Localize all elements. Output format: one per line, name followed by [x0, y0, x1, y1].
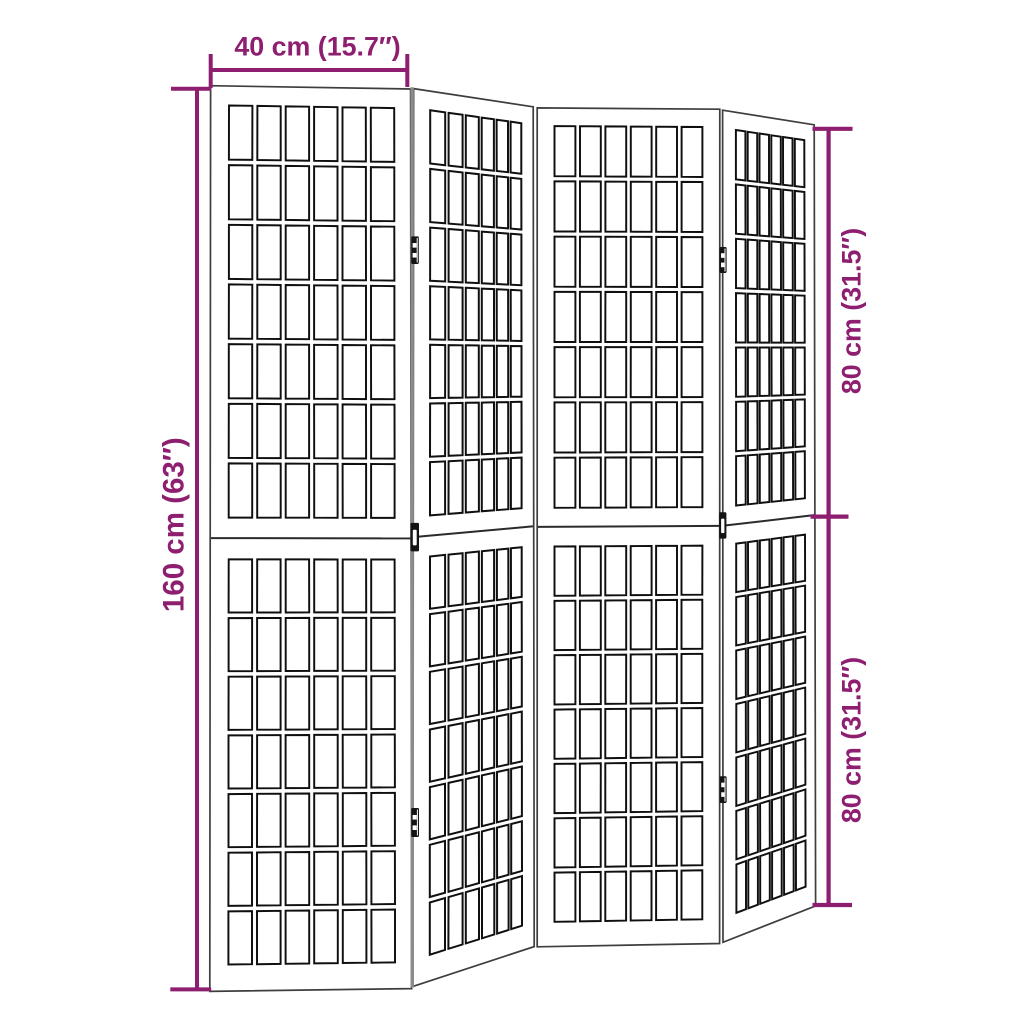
svg-text:40 cm (15.7″): 40 cm (15.7″)	[234, 32, 400, 62]
svg-text:80 cm (31.5″): 80 cm (31.5″)	[837, 657, 867, 823]
svg-text:80 cm (31.5″): 80 cm (31.5″)	[837, 228, 867, 394]
svg-text:160 cm (63″): 160 cm (63″)	[158, 437, 191, 612]
